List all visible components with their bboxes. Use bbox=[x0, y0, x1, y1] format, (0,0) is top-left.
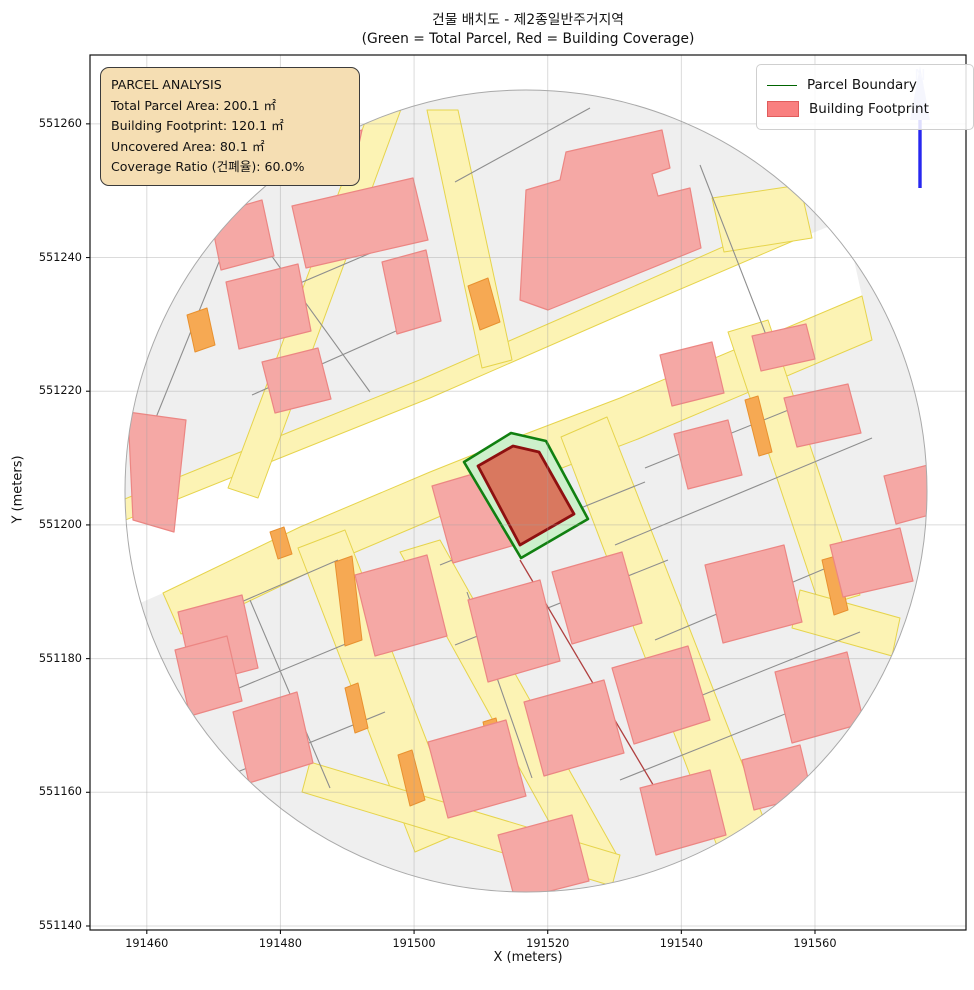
annotation-footprint: Building Footprint: 120.1 ㎡ bbox=[111, 116, 349, 137]
annotation-coverage: Coverage Ratio (건폐율): 60.0% bbox=[111, 157, 349, 178]
y-tick-label: 551140 bbox=[34, 919, 82, 932]
y-tick-label: 551220 bbox=[34, 384, 82, 397]
x-tick-label: 191540 bbox=[657, 937, 705, 950]
x-tick-label: 191500 bbox=[390, 937, 438, 950]
legend-item-building-footprint: Building Footprint bbox=[767, 97, 963, 121]
x-tick-label: 191460 bbox=[123, 937, 171, 950]
parcel-analysis-annotation: PARCEL ANALYSIS Total Parcel Area: 200.1… bbox=[100, 67, 360, 186]
parcel-boundary-line-swatch bbox=[767, 85, 797, 86]
legend-label: Parcel Boundary bbox=[807, 77, 917, 93]
x-axis-label: X (meters) bbox=[90, 950, 966, 965]
y-tick-label: 551240 bbox=[34, 251, 82, 264]
legend-item-parcel-boundary: Parcel Boundary bbox=[767, 73, 963, 97]
cadastral-map-layer bbox=[110, 90, 948, 900]
x-tick-label: 191520 bbox=[524, 937, 572, 950]
y-tick-label: 551180 bbox=[34, 652, 82, 665]
building-footprint-swatch bbox=[767, 101, 799, 117]
y-tick-label: 551260 bbox=[34, 117, 82, 130]
figure-canvas: N 건물 배치도 - 제2종일반주거지역 (Green = Total Parc… bbox=[0, 0, 974, 990]
chart-subtitle: (Green = Total Parcel, Red = Building Co… bbox=[90, 31, 966, 47]
legend-label: Building Footprint bbox=[809, 101, 929, 117]
chart-title: 건물 배치도 - 제2종일반주거지역 bbox=[90, 8, 966, 28]
legend-box: Parcel Boundary Building Footprint bbox=[756, 64, 974, 130]
x-tick-label: 191480 bbox=[256, 937, 304, 950]
y-tick-label: 551200 bbox=[34, 518, 82, 531]
annotation-heading: PARCEL ANALYSIS bbox=[111, 75, 349, 96]
y-axis-label: Y (meters) bbox=[11, 430, 26, 550]
annotation-uncovered: Uncovered Area: 80.1 ㎡ bbox=[111, 137, 349, 158]
x-tick-label: 191560 bbox=[791, 937, 839, 950]
y-tick-label: 551160 bbox=[34, 785, 82, 798]
annotation-total-area: Total Parcel Area: 200.1 ㎡ bbox=[111, 96, 349, 117]
